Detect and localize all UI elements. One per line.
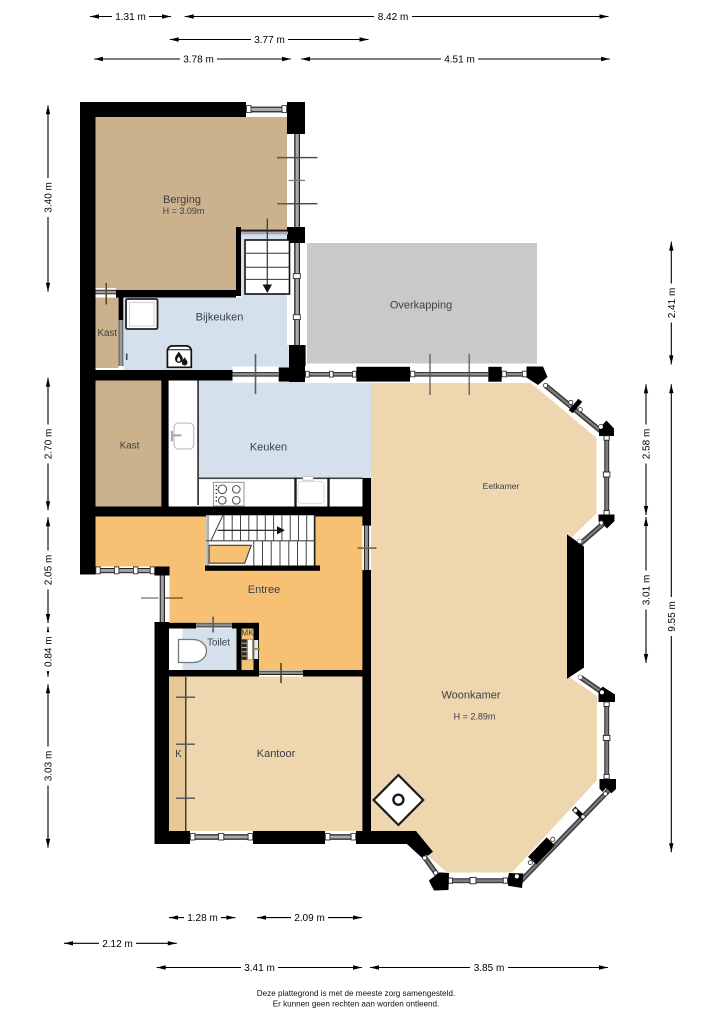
svg-text:3.78 m: 3.78 m	[183, 55, 214, 66]
svg-text:3.85 m: 3.85 m	[474, 963, 505, 974]
svg-text:4.51 m: 4.51 m	[444, 55, 475, 66]
svg-text:H = 2.89m: H = 2.89m	[454, 712, 496, 722]
svg-text:9.55 m: 9.55 m	[667, 601, 678, 632]
svg-text:1.31 m: 1.31 m	[115, 12, 146, 23]
svg-text:Berging: Berging	[163, 194, 201, 206]
svg-text:Kast: Kast	[120, 441, 140, 452]
svg-text:2.41 m: 2.41 m	[667, 288, 678, 319]
svg-text:Er kunnen geen rechten aan wor: Er kunnen geen rechten aan worden ontlee…	[273, 1000, 440, 1009]
svg-text:2.58 m: 2.58 m	[642, 429, 653, 460]
svg-text:Kantoor: Kantoor	[257, 748, 296, 760]
svg-text:2.05 m: 2.05 m	[44, 555, 55, 586]
svg-text:3.77 m: 3.77 m	[254, 35, 285, 46]
svg-text:1.28 m: 1.28 m	[187, 913, 218, 924]
svg-text:3.03 m: 3.03 m	[44, 751, 55, 782]
svg-text:H = 3.09m: H = 3.09m	[163, 206, 205, 216]
svg-text:K: K	[175, 749, 182, 760]
svg-text:Entree: Entree	[248, 584, 280, 596]
svg-text:Kast: Kast	[97, 328, 117, 339]
svg-text:Woonkamer: Woonkamer	[441, 690, 500, 702]
svg-text:2.12 m: 2.12 m	[102, 939, 133, 950]
svg-text:Deze plattegrond is met de mee: Deze plattegrond is met de meeste zorg s…	[257, 989, 455, 998]
svg-text:2.70 m: 2.70 m	[44, 429, 55, 460]
svg-text:3.41 m: 3.41 m	[244, 963, 275, 974]
svg-text:3.40 m: 3.40 m	[44, 182, 55, 213]
svg-text:8.42 m: 8.42 m	[378, 12, 409, 23]
svg-text:Bijkeuken: Bijkeuken	[196, 312, 244, 324]
svg-text:Overkapping: Overkapping	[390, 300, 452, 312]
svg-text:3.01 m: 3.01 m	[642, 575, 653, 606]
svg-text:Toilet: Toilet	[207, 638, 230, 649]
svg-text:Eetkamer: Eetkamer	[483, 481, 520, 491]
svg-text:2.09 m: 2.09 m	[294, 913, 325, 924]
svg-text:0.84 m: 0.84 m	[44, 636, 55, 667]
svg-text:Keuken: Keuken	[250, 442, 287, 454]
svg-text:MK: MK	[241, 628, 254, 638]
